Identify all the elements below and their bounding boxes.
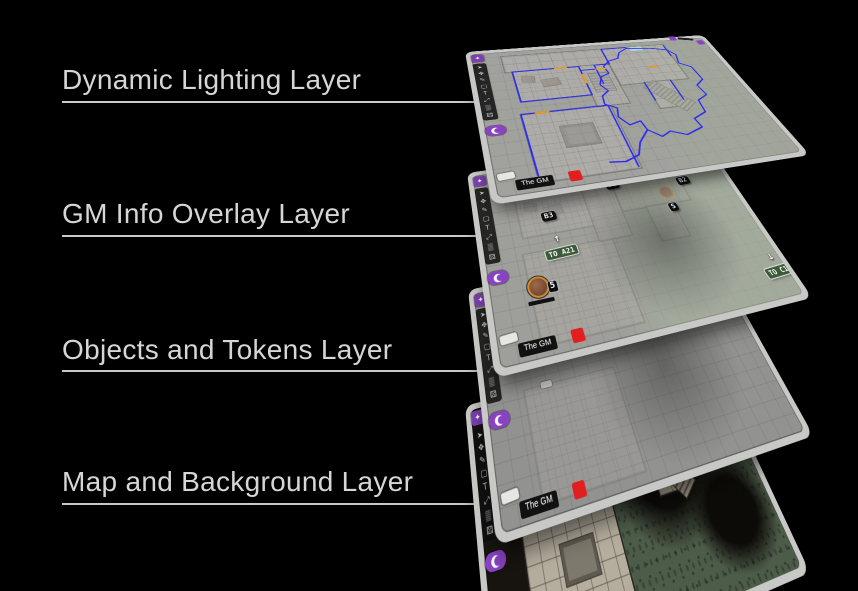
dice-tool-icon[interactable]: ⚄: [487, 387, 500, 402]
label-gm-info-overlay-layer: GM Info Overlay Layer: [62, 198, 350, 230]
zoom-slider[interactable]: [677, 37, 693, 40]
crescent-icon: [493, 273, 503, 283]
crescent-icon: [491, 127, 501, 134]
leader-line-objects-tokens: [62, 370, 481, 372]
layers-diagram: Dynamic Lighting Layer GM Info Overlay L…: [0, 0, 858, 591]
label-dynamic-lighting-layer: Dynamic Lighting Layer: [62, 64, 361, 96]
map-canvas[interactable]: [470, 38, 801, 199]
dice-tool-icon[interactable]: ⚄: [483, 111, 496, 119]
app-menu-icon[interactable]: ✦: [473, 176, 487, 187]
leader-line-map-background: [62, 503, 483, 505]
crescent-icon: [494, 413, 504, 426]
crescent-icon: [491, 553, 501, 569]
label-objects-tokens-layer: Objects and Tokens Layer: [62, 334, 392, 366]
zoom-in-icon[interactable]: [668, 36, 678, 40]
zoom-out-icon[interactable]: [696, 40, 706, 45]
label-map-background-layer: Map and Background Layer: [62, 466, 413, 498]
dynamic-lighting-lines[interactable]: [470, 38, 801, 199]
dice-tool-icon[interactable]: ⚄: [486, 251, 499, 263]
panel-dynamic-lighting: ✦ ➤✥✎▢T⤢▒⚄ The GM: [465, 35, 810, 205]
leader-line-gm-info: [62, 235, 477, 237]
app-menu-icon[interactable]: ✦: [471, 54, 485, 62]
leader-line-dynamic-lighting: [62, 101, 474, 103]
